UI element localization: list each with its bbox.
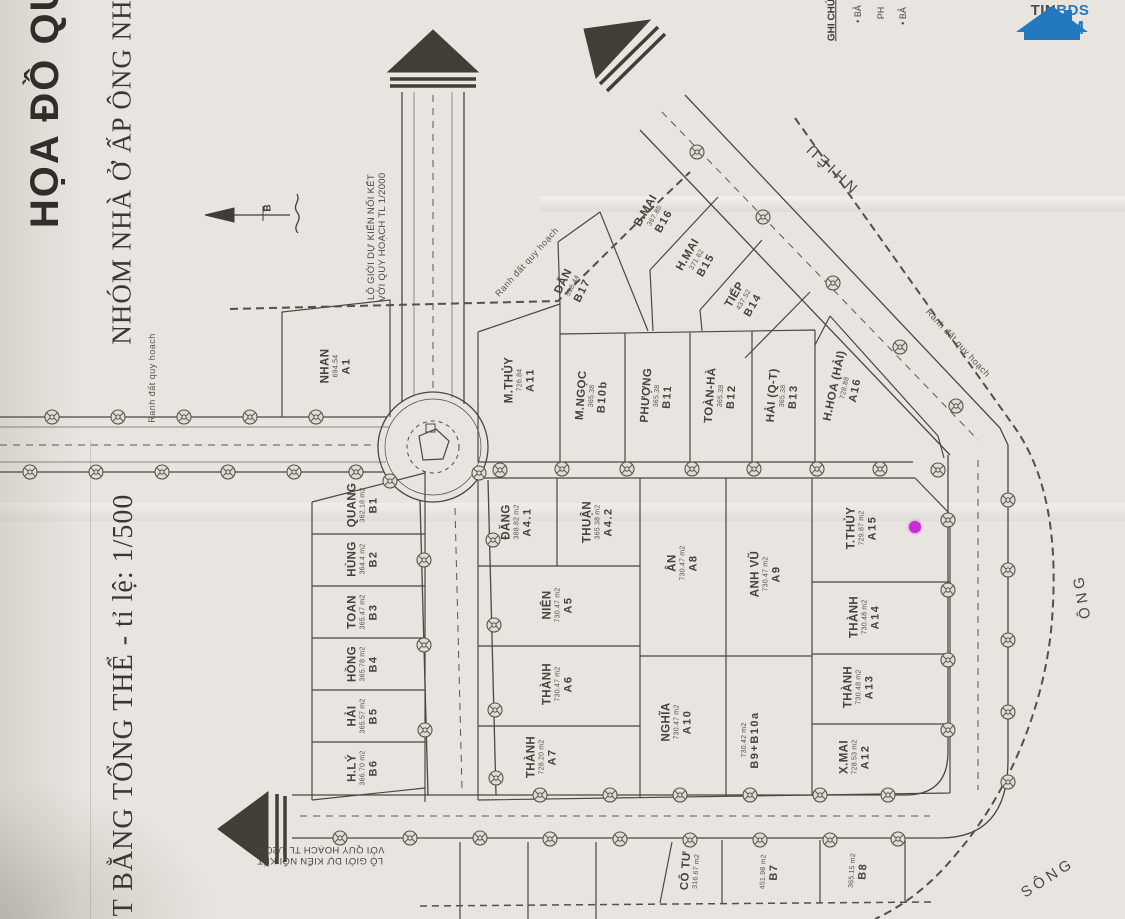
plot-code: B4 — [368, 655, 380, 672]
map-scale-title: T BẰNG TỔNG THỂ - tỉ lệ: 1/500 — [108, 494, 140, 917]
plot-name: HẢI (Q-T) — [765, 368, 781, 423]
plot-code: B9+B10a — [749, 711, 761, 768]
plot-label-A9: ANH VŨ730.47 m2A9 — [750, 551, 783, 598]
plot-area: 365.47 m2 — [360, 595, 367, 630]
plot-code: B2 — [368, 550, 380, 567]
plot-code: B3 — [368, 603, 380, 620]
plot-name: THÀNH — [526, 736, 538, 778]
plot-label-A4.2: THUẬN365.38 m2A4.2 — [582, 501, 615, 543]
plot-area: 365.15 m2 — [848, 853, 857, 888]
plot-code: A11 — [525, 368, 537, 392]
plot-code: B7 — [768, 863, 781, 880]
plot-name: THUẬN — [582, 501, 594, 543]
plot-name: M.NGỌC — [574, 370, 589, 420]
plot-label-A13: THÀNH730.48 m2A13 — [843, 666, 876, 708]
plot-code: B12 — [725, 384, 739, 409]
plot-label-B3: TOAN365.47 m2B3 — [347, 595, 380, 630]
plot-label-B11: PHƯỢNG365.38B11 — [639, 367, 676, 424]
map-subtitle: NHÓM NHÀ Ở ẤP ÔNG NH — [106, 0, 137, 345]
plot-label-B12: TOÀN-HÀ365.38B12 — [703, 367, 740, 425]
road-note-line1: LỘ GIỚI DỰ KIẾN NỐI KẾT — [256, 854, 385, 865]
plot-label-A4.1: ĐĂNG388.82 m2A4.1 — [501, 504, 534, 539]
plot-code: B10b — [595, 380, 609, 414]
plot-label-A7: THÀNH728.20 m2A7 — [526, 736, 559, 778]
plot-label-A10: NGHĨA730.47 m2A10 — [661, 702, 694, 741]
plot-name: ĐĂNG — [501, 504, 513, 539]
plot-name: NGHĨA — [661, 702, 673, 741]
plot-name: H.LÝ — [347, 754, 359, 782]
plot-code: B8 — [856, 862, 869, 880]
boundary-label: Ranh đất quy hoạch — [147, 333, 157, 423]
plot-area: 694.54 — [333, 355, 340, 378]
road-note-line2: VỚI QUY HOẠCH TL 1/2000 — [378, 173, 389, 302]
plot-area: 730.47 m2 — [555, 588, 562, 623]
plot-area: 388.82 m2 — [514, 505, 521, 540]
plot-name: TOÀN-HÀ — [703, 367, 719, 423]
boundary-dashed-bottom — [420, 902, 935, 906]
plot-label-A14: THÀNH730.48 m2A14 — [849, 596, 882, 638]
road-note-line2: VỚI QUY HOẠCH TL 1/2000 — [256, 843, 385, 854]
plot-code: A13 — [864, 675, 876, 700]
plot-label-B6: H.LÝ366.70 m2B6 — [347, 751, 380, 786]
plot-label-A12: X.MAI728.53 m2A12 — [839, 740, 872, 775]
plot-label-B10b: M.NGỌC365.38B10b — [574, 370, 610, 422]
plot-name: THÀNH — [849, 596, 861, 638]
plot-name: HẢI — [347, 705, 359, 726]
plot-code: A4.2 — [603, 507, 615, 536]
plot-area: 730.47 m2 — [674, 705, 681, 740]
compass-north-label: B — [262, 204, 274, 211]
map-linework — [0, 0, 1125, 919]
plot-name: NIÊN — [542, 590, 554, 619]
plot-name: NHAN — [320, 349, 332, 384]
plot-label-COTU: CÔ TƯ316.67 m2 — [679, 851, 702, 891]
tinbds-logo: TINBDS COM — [1012, 6, 1108, 37]
plot-label-B5: HẢI365.57 m2B5 — [347, 699, 380, 734]
plot-code: A9 — [771, 565, 783, 582]
plot-name: HÙNG — [347, 541, 359, 576]
plot-name: HỒNG — [347, 646, 359, 682]
road-note-north: LỘ GIỚI DỰ KIẾN NỐI KẾT VỚI QUY HOẠCH TL… — [367, 173, 389, 302]
plot-code: B6 — [368, 759, 380, 776]
plot-code: A15 — [867, 516, 879, 541]
plot-label-B13: HẢI (Q-T)365.38B13 — [765, 368, 802, 424]
plot-label-B9+B10a: 730.42 m2B9+B10a — [741, 711, 761, 768]
plot-code: A1 — [341, 357, 353, 374]
plot-area: 365.57 m2 — [360, 699, 367, 734]
house-icon — [1012, 6, 1092, 40]
plot-label-A11: M.THỦY726.84A11 — [504, 357, 537, 403]
plot-area: 730.47 m2 — [555, 667, 562, 702]
plot-area: 730.47 m2 — [763, 557, 770, 592]
plot-area: 730.48 m2 — [862, 600, 869, 635]
legend-item: PH — [876, 7, 886, 20]
plot-code: A6 — [563, 675, 575, 692]
north-arrow — [205, 194, 299, 233]
plot-area: 365.38 m2 — [595, 505, 602, 540]
plot-area: 729.87 m2 — [859, 511, 866, 546]
plot-area: 365.78 m2 — [360, 647, 367, 682]
plot-area: 726.84 — [517, 369, 524, 392]
plot-code: B13 — [787, 384, 801, 409]
legend-item: • BẢ — [853, 5, 863, 23]
plot-code: A8 — [688, 554, 700, 571]
plot-name: THÀNH — [542, 663, 554, 705]
plot-area: 362.18 m2 — [360, 488, 367, 523]
plot-area: 730.47 m2 — [680, 546, 687, 581]
plot-name: THÀNH — [843, 666, 855, 708]
plot-name: X.MAI — [839, 740, 851, 774]
plot-label-B7: 451.98 m2B7 — [759, 854, 780, 890]
plot-label-B4: HỒNG365.78 m2B4 — [347, 646, 380, 682]
map-title: HỌA ĐỒ QUY — [22, 0, 68, 228]
plot-label-A8: ÂN730.47 m2A8 — [667, 546, 700, 581]
legend-header: GHI CHÚ — [826, 0, 838, 41]
plot-label-B2: HÙNG364.4 m2B2 — [347, 541, 380, 576]
legend-item: • BẢ — [898, 7, 908, 25]
plot-name: ANH VŨ — [750, 551, 762, 598]
plot-label-A15: T.THỦY729.87 m2A15 — [846, 507, 879, 550]
plot-label-B1: QUANG362.18 m2B1 — [347, 483, 380, 528]
scanned-cadastral-map: HỌA ĐỒ QUY NHÓM NHÀ Ở ẤP ÔNG NH T BẰNG T… — [0, 0, 1125, 919]
plot-area: 730.48 m2 — [856, 670, 863, 705]
plot-label-A5: NIÊN730.47 m2A5 — [542, 588, 575, 623]
plot-area: 451.98 m2 — [759, 854, 767, 889]
plot-area: 364.4 m2 — [360, 544, 367, 575]
road-end-arrow-northeast — [584, 20, 665, 91]
plot-name: ÂN — [667, 554, 679, 571]
plot-code: A4.1 — [522, 507, 534, 536]
plot-area: 730.42 m2 — [741, 723, 748, 758]
plot-code: A12 — [860, 745, 872, 770]
plot-name: M.THỦY — [504, 357, 516, 403]
road-note-west: LỘ GIỚI DỰ KIẾN NỐI KẾT VỚI QUY HOẠCH TL… — [256, 843, 385, 865]
road-end-arrow-north — [388, 30, 478, 86]
plot-code: A5 — [563, 596, 575, 613]
plot-code: A10 — [682, 710, 694, 735]
plot-label-B8: 365.15 m2B8 — [848, 853, 870, 889]
plot-area: 728.20 m2 — [539, 740, 546, 775]
plot-code: B11 — [661, 384, 675, 409]
plot-name: T.THỦY — [846, 507, 858, 550]
plot-name: PHƯỢNG — [639, 367, 655, 423]
plot-name: QUANG — [347, 483, 359, 528]
plot-name: TOAN — [347, 595, 359, 629]
plot-area: 728.53 m2 — [852, 740, 859, 775]
plot-label-A1: NHAN694.54A1 — [320, 349, 353, 384]
plot-boundaries — [282, 197, 950, 919]
plot-code: A14 — [870, 605, 882, 630]
plot-code: B5 — [368, 707, 380, 724]
plot-label-A6: THÀNH730.47 m2A6 — [542, 663, 575, 705]
plot-code: B1 — [368, 496, 380, 513]
plot-area: 366.70 m2 — [360, 751, 367, 786]
plot-code: A7 — [547, 748, 559, 765]
location-marker-dot — [909, 521, 921, 533]
